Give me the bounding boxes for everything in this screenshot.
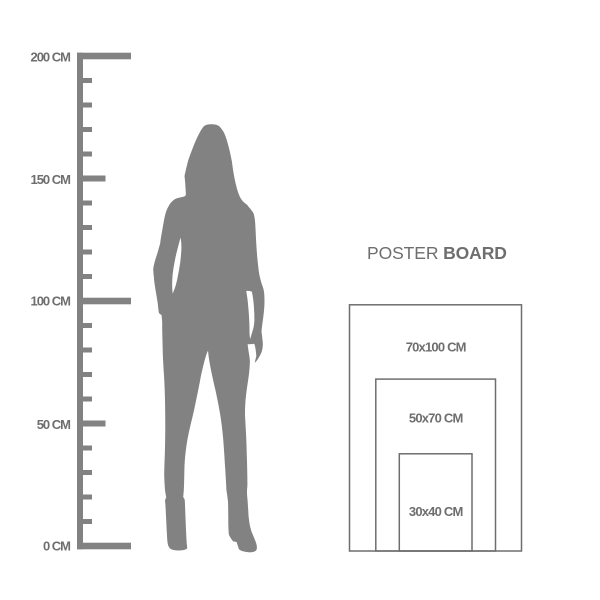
- svg-text:0 CM: 0 CM: [43, 539, 70, 554]
- svg-text:POSTER BOARD: POSTER BOARD: [367, 243, 507, 263]
- svg-text:100 CM: 100 CM: [30, 294, 70, 309]
- svg-text:50x70 CM: 50x70 CM: [409, 410, 463, 425]
- svg-text:50 CM: 50 CM: [37, 417, 70, 432]
- svg-text:70x100 CM: 70x100 CM: [406, 339, 466, 354]
- svg-text:150 CM: 150 CM: [30, 172, 70, 187]
- svg-text:30x40 CM: 30x40 CM: [409, 504, 463, 519]
- svg-text:200 CM: 200 CM: [30, 50, 70, 65]
